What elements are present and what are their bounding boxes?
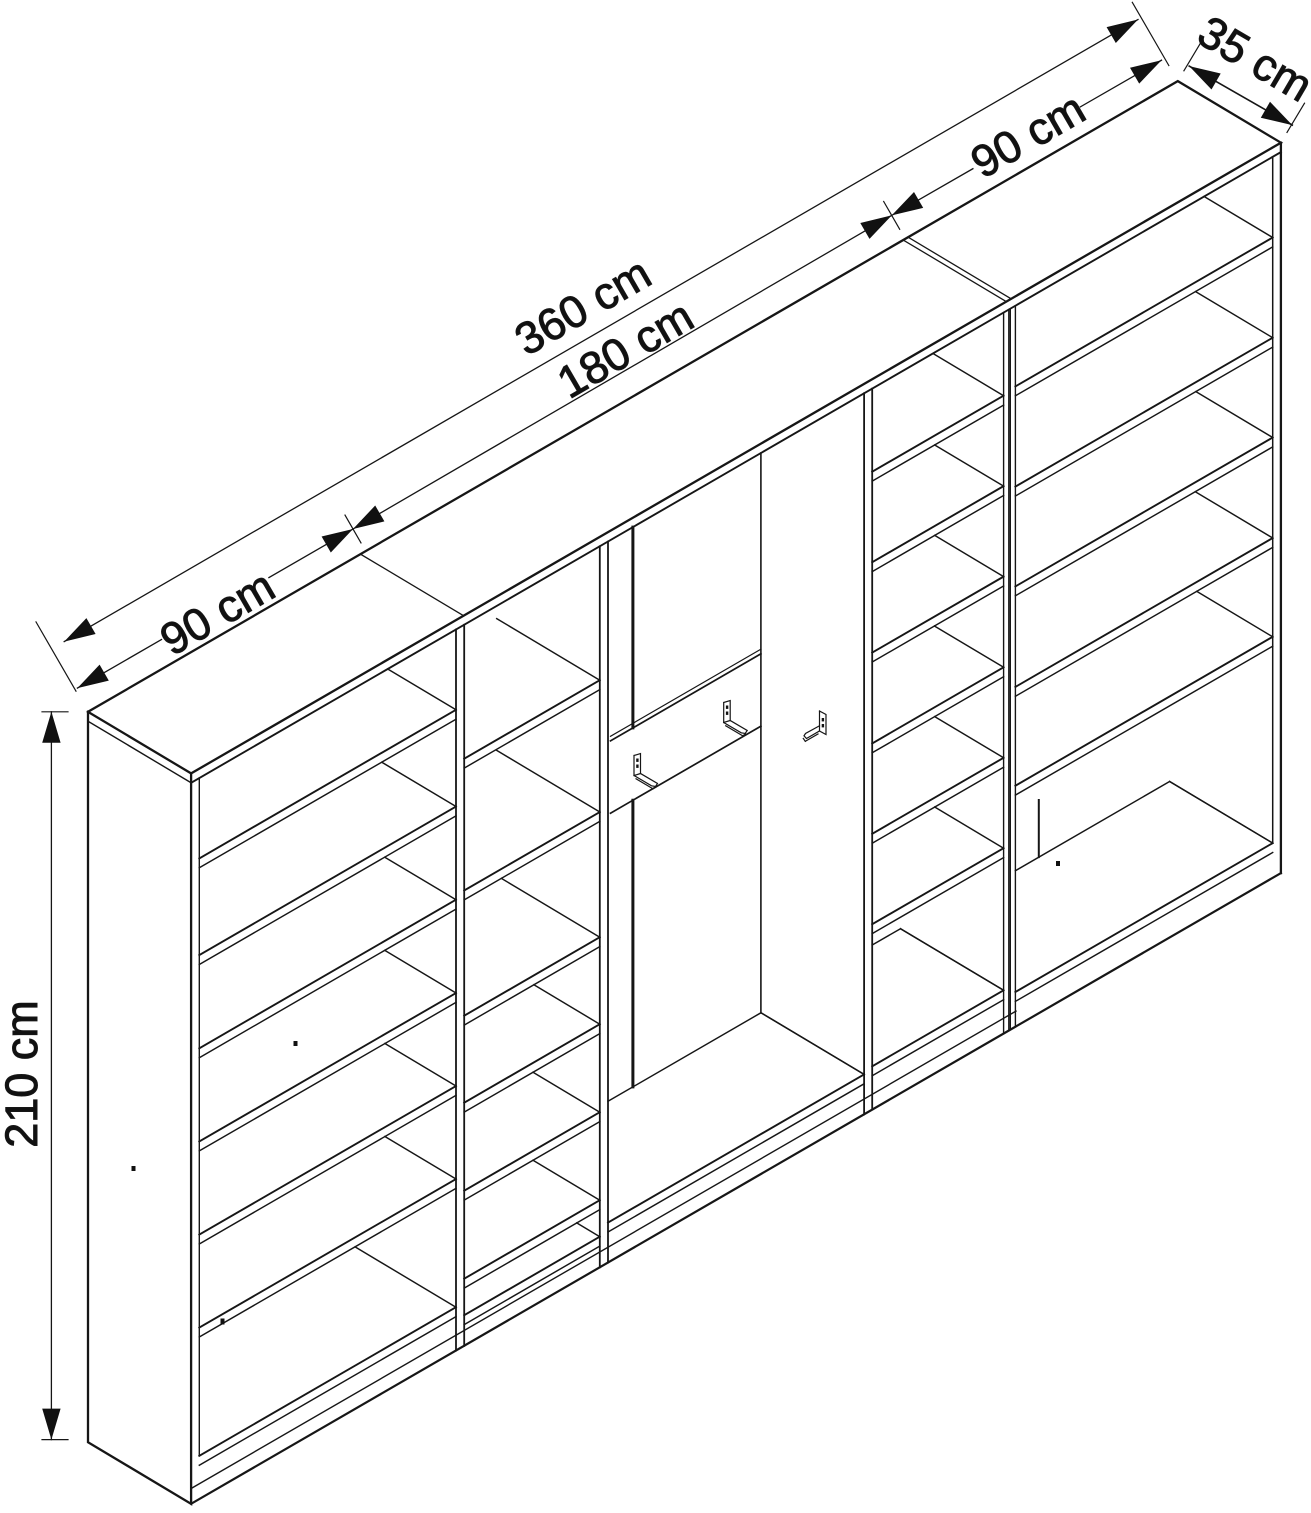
svg-text:90 cm: 90 cm — [962, 82, 1094, 188]
svg-text:210 cm: 210 cm — [0, 1000, 47, 1148]
svg-text:90 cm: 90 cm — [151, 560, 283, 666]
svg-text:35 cm: 35 cm — [1190, 6, 1311, 112]
